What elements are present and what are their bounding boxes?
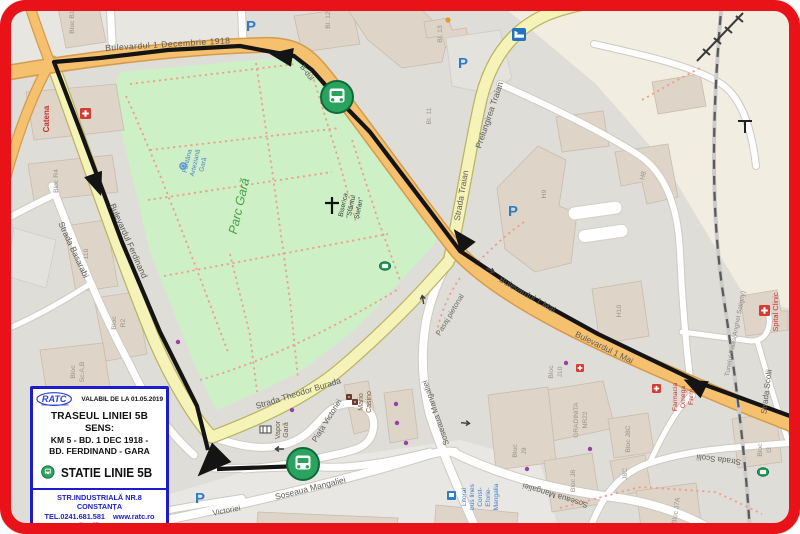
- hospital-label: Spital Clinic: [771, 292, 780, 331]
- contact-address: STR.INDUSTRIALĂ NR.8 CONSTANȚA: [34, 493, 165, 512]
- gradinita-label-line: NR22: [582, 411, 589, 428]
- contact-email: e-mail: office@ratc.ro: [34, 521, 165, 530]
- vapor-label-line: Vapor: [275, 420, 282, 439]
- pharmacy-icon-omega: [652, 384, 661, 393]
- bus-stop-icon-small: [380, 262, 391, 270]
- building-label-line: Bloc: [757, 443, 764, 457]
- building-label-line: Bloc: [548, 365, 555, 379]
- farmacia-label-line: Omega: [680, 386, 687, 409]
- contact-phone: TEL.0241.681.581: [45, 512, 105, 521]
- bus-stop-legend-icon: [41, 460, 55, 484]
- building-label-line: J9: [521, 447, 528, 454]
- casino-label: Mario Casino: [358, 391, 373, 413]
- litoral-label-line: Litoral: [461, 487, 468, 505]
- parking-icon: P: [508, 203, 518, 220]
- litoral-label-line: Mangalia: [493, 483, 500, 510]
- building-label-h10: H10: [616, 305, 623, 318]
- pharmacy-icon-catena: [80, 108, 91, 119]
- vapor-label-line: Gară: [283, 422, 290, 438]
- building-label-line: Bloc: [512, 444, 519, 458]
- station-legend-label: STATIE LINIE 5B: [61, 465, 152, 480]
- building-label-line: R2: [120, 318, 127, 327]
- building-label-bl12: Bl. 12: [325, 11, 332, 29]
- building-label-j8: Bloc J8: [570, 470, 577, 493]
- building-label-line: Bloc: [70, 365, 77, 379]
- building: [58, 2, 106, 48]
- contact-website: www.ratc.ro: [113, 512, 155, 521]
- hotel-icon: [512, 28, 526, 41]
- litoral-label-line: Const-: [477, 487, 484, 506]
- route-title: TRASEUL LINIEI 5B: [33, 411, 166, 422]
- pharmacy-icon: [576, 364, 584, 372]
- building-label-110: 110: [83, 248, 90, 259]
- gradinita-label-line: GRADINITA: [573, 402, 580, 438]
- parking-icon: P: [458, 55, 468, 72]
- litoral-bus-stop-icon: [447, 491, 456, 500]
- contact-block: STR.INDUSTRIALĂ NR.8 CONSTANȚA TEL.0241.…: [33, 488, 166, 534]
- fuel-poi-dot: [445, 17, 450, 22]
- route-description-line2: BD. FERDINAND - GARA: [33, 446, 166, 456]
- litoral-label-line: Eforie-: [485, 487, 492, 506]
- litoral-label-line: bus lines: [469, 483, 476, 510]
- valid-from-label: VALABIL DE LA 01.05.2019: [81, 396, 163, 403]
- building-label-h9: H9: [541, 189, 548, 198]
- building-label-b1: Bloc B1: [69, 10, 76, 34]
- building-label-r4: Bloc R4: [53, 169, 60, 193]
- building-label-bl13: Bl. 13: [437, 25, 444, 43]
- direction-label: SENS:: [33, 423, 166, 434]
- building: [384, 389, 418, 443]
- building-label-j8c2: J8C: [622, 468, 629, 480]
- building: [488, 387, 556, 470]
- route-description-line1: KM 5 - BD. 1 DEC 1918 -: [33, 435, 166, 445]
- route-map-poster: P P P P Bulevardul 1 Decembrie 1918 B-du…: [0, 0, 800, 534]
- ratc-logo: RATC: [36, 391, 81, 408]
- bus-stop-icon-bd-decembrie: [321, 81, 353, 113]
- bus-stop-icon-gara: [287, 448, 319, 480]
- building-label-j8c: Bloc J8C: [625, 425, 632, 452]
- hospital-icon: [759, 305, 770, 316]
- parking-icon: P: [195, 490, 205, 507]
- casino-label-line: Casino: [366, 391, 373, 413]
- catena-label: Catena: [42, 105, 51, 132]
- building-label-bl11: Bl. 11: [426, 107, 433, 124]
- vapor-gara-icon: [260, 426, 271, 433]
- bus-stop-icon-small: [758, 468, 769, 476]
- building-label-line: J10: [557, 366, 564, 377]
- vapor-gara-label: Vapor Gară: [275, 420, 290, 439]
- farmacia-label-line: Farmacia: [672, 383, 679, 412]
- parking-icon: P: [246, 18, 256, 35]
- building-label-line: I3: [766, 447, 773, 453]
- building-label-line: Bloc: [111, 316, 118, 330]
- farmacia-label-line: Farm: [688, 389, 695, 405]
- ratc-logo-text: RATC: [42, 394, 67, 404]
- legend-panel: RATC VALABIL DE LA 01.05.2019 TRASEUL LI…: [30, 386, 169, 534]
- casino-label-line: Mario: [358, 393, 365, 411]
- building-label-line: Sc.A,B: [79, 361, 86, 382]
